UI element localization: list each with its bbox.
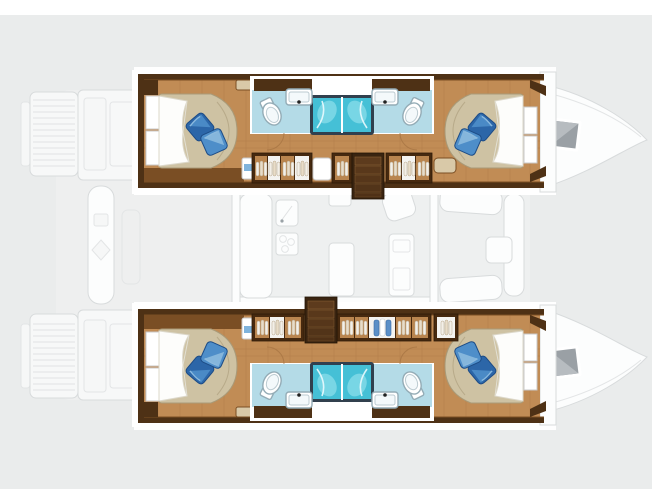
upper-hull-wardrobes bbox=[252, 153, 432, 183]
saloon-table bbox=[329, 243, 354, 296]
lower-hull-stairs bbox=[305, 297, 337, 343]
cockpit-bench bbox=[88, 186, 114, 304]
saloon-port-wall bbox=[232, 184, 240, 306]
upper-hull-stairs bbox=[352, 153, 384, 199]
fwd-cockpit-table bbox=[486, 237, 512, 263]
floor-plan-image bbox=[0, 0, 652, 489]
fwd-cockpit-seat bbox=[439, 275, 503, 303]
saloon-bulkhead bbox=[430, 184, 438, 306]
swim-platform-lower bbox=[21, 314, 78, 398]
lower-hull bbox=[132, 297, 556, 430]
stove bbox=[276, 233, 298, 255]
swim-platform-upper bbox=[21, 92, 78, 176]
galley-counter bbox=[240, 194, 272, 298]
upper-hull bbox=[132, 67, 556, 199]
lower-hull-wardrobes bbox=[252, 314, 458, 341]
top-white-band bbox=[0, 0, 652, 15]
galley-sink bbox=[276, 200, 298, 226]
catamaran-floor-plan bbox=[0, 0, 652, 489]
chart-table bbox=[389, 234, 414, 296]
